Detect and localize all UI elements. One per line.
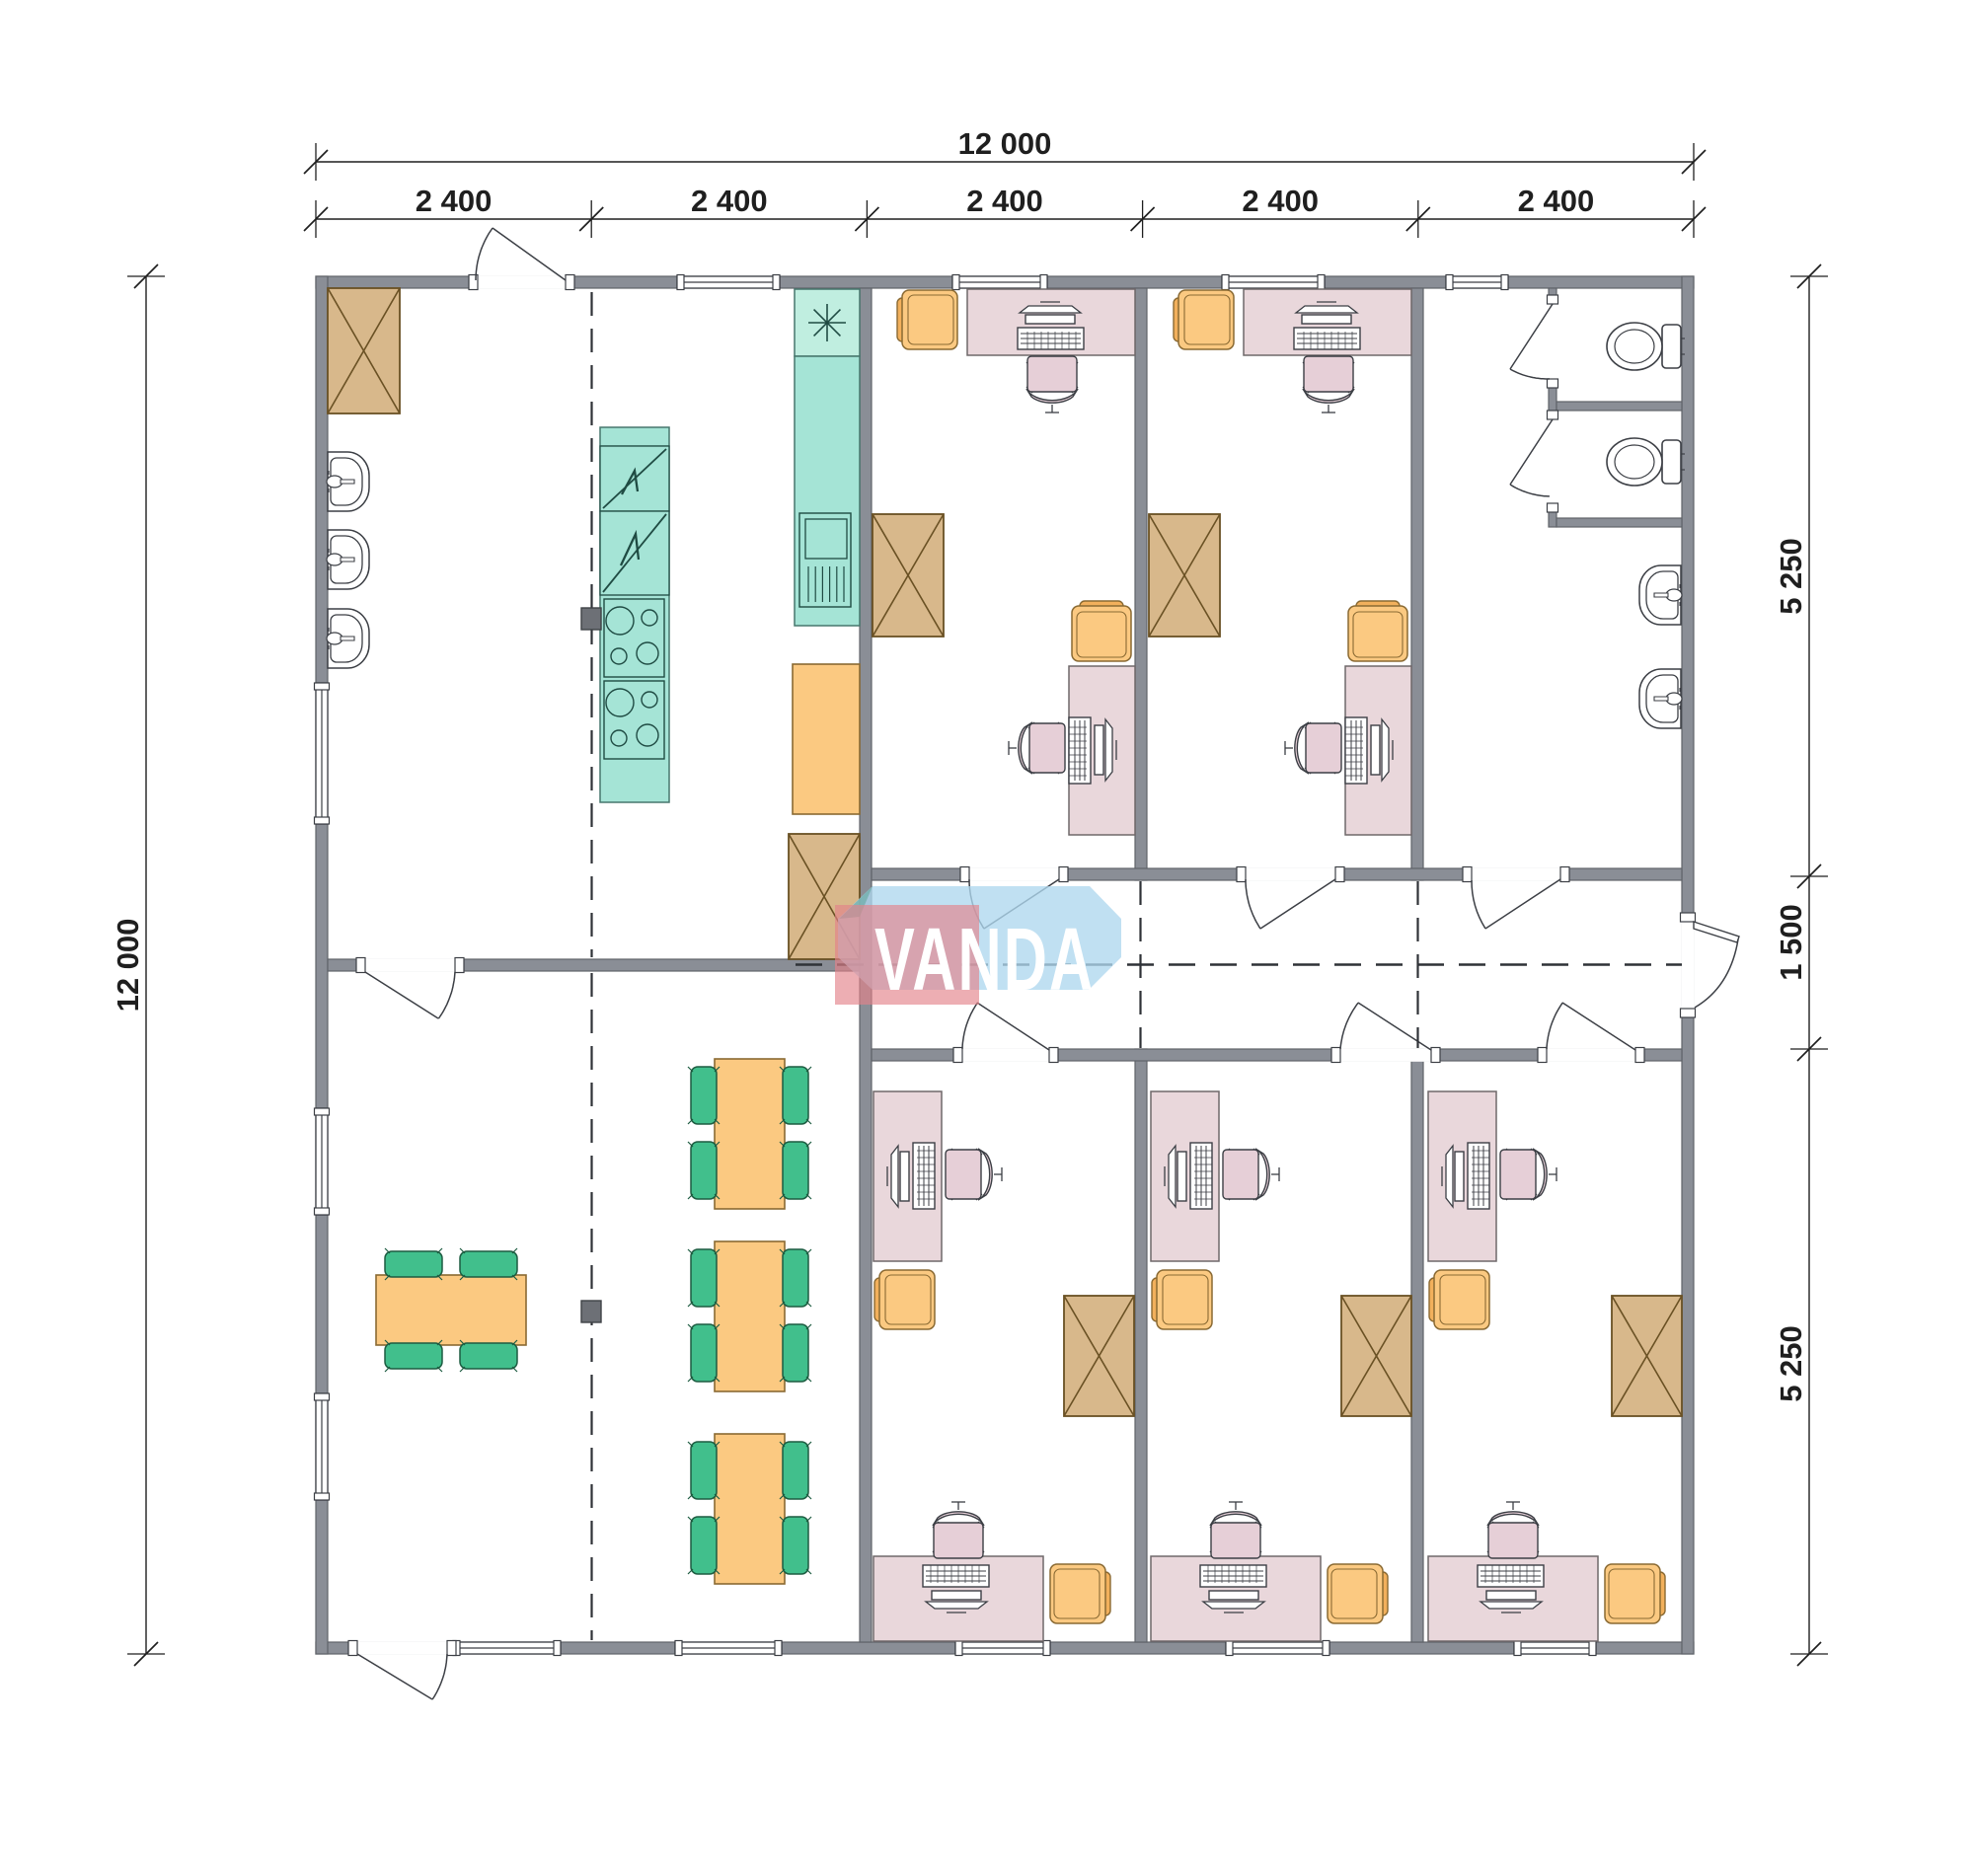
svg-text:2 400: 2 400: [416, 184, 493, 218]
svg-text:12 000: 12 000: [111, 919, 145, 1013]
svg-text:2 400: 2 400: [1518, 184, 1595, 218]
svg-text:5 250: 5 250: [1774, 538, 1808, 615]
svg-text:12 000: 12 000: [958, 126, 1052, 161]
svg-text:VANDA: VANDA: [874, 910, 1095, 1010]
svg-text:2 400: 2 400: [1242, 184, 1319, 218]
svg-text:2 400: 2 400: [966, 184, 1043, 218]
svg-text:1 500: 1 500: [1774, 904, 1808, 981]
svg-text:5 250: 5 250: [1774, 1325, 1808, 1402]
svg-text:2 400: 2 400: [691, 184, 768, 218]
